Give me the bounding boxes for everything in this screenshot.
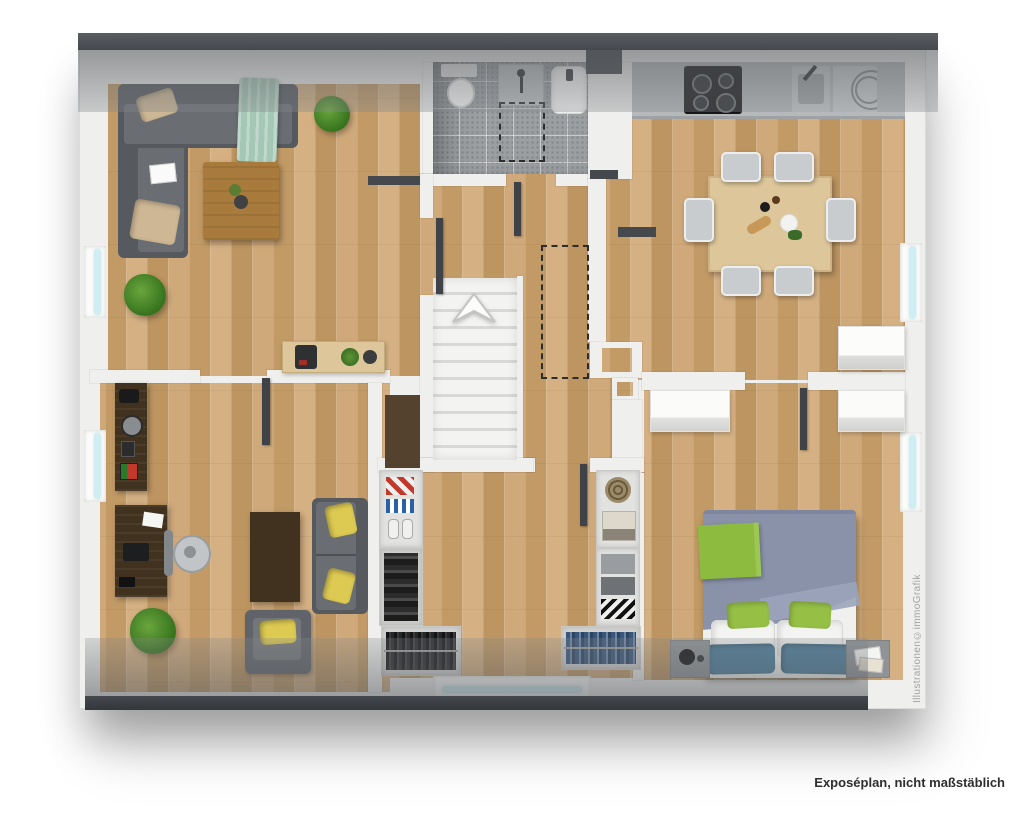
- bottle: [760, 202, 770, 212]
- dining-chair: [721, 152, 761, 182]
- clock: [121, 415, 143, 437]
- page: Illustrationen©immoGrafik Exposéplan, ni…: [0, 0, 1024, 829]
- bottle: [772, 196, 780, 204]
- folded-clothes: [386, 477, 414, 495]
- folded-gray: [601, 577, 635, 595]
- roof-edge-top: [78, 33, 938, 50]
- hall-kitchen-wall: [588, 179, 606, 342]
- chair-hub: [184, 546, 196, 558]
- dining-chair: [774, 266, 814, 296]
- potted-plant: [124, 274, 166, 316]
- espresso-accent: [299, 360, 307, 365]
- kitchen-dresser: [838, 326, 905, 370]
- junction-wall-a: [590, 342, 642, 378]
- stairs-east-edge: [517, 276, 523, 458]
- living-east-wall-upper: [420, 174, 433, 218]
- living-office-wall-west: [90, 370, 200, 383]
- small-plant: [341, 348, 359, 366]
- wall-niche-large: [602, 348, 632, 372]
- picture-frame: [121, 441, 135, 457]
- coffee-table: [203, 162, 279, 240]
- sneaker: [402, 519, 413, 539]
- bedroom-north-wall-left: [642, 372, 745, 390]
- green-pillow: [726, 601, 769, 629]
- cushion-divider: [316, 554, 356, 556]
- paper: [142, 512, 164, 529]
- chair-backrest: [164, 530, 173, 576]
- bedroom-north-wall-right: [808, 372, 905, 390]
- bowl: [363, 350, 377, 364]
- window-left-living-glass: [95, 250, 100, 314]
- dining-chair: [684, 198, 714, 242]
- basket: [605, 477, 631, 503]
- zigzag-textile: [601, 599, 635, 619]
- dining-chair: [774, 152, 814, 182]
- bedroom-door: [800, 388, 807, 450]
- junction-wall-b: [612, 378, 638, 400]
- sideboard: [282, 341, 385, 373]
- bag: [119, 389, 139, 403]
- staircase-direction-arrow: [447, 286, 501, 326]
- roof-slope-band-top: [78, 50, 938, 112]
- green-blanket: [698, 522, 762, 579]
- baguette: [745, 214, 773, 236]
- office-chair: [164, 528, 210, 580]
- sneaker: [388, 519, 399, 539]
- espresso-machine: [295, 345, 317, 369]
- office-door: [262, 378, 270, 445]
- green-pillow: [788, 601, 831, 629]
- striped-towel: [386, 499, 414, 513]
- watermark: Illustrationen©immoGrafik: [912, 538, 923, 703]
- bedroom-closet-left: [650, 390, 730, 432]
- roof-edge-bottom: [85, 696, 868, 710]
- dressing-tall-cabinet: [385, 395, 420, 468]
- dressing-room-door: [580, 464, 587, 526]
- desk-item: [119, 577, 135, 587]
- hallway-dashed-marker: [541, 245, 589, 379]
- office-wall-shelf: [115, 383, 147, 491]
- towel-stack: [602, 511, 636, 541]
- living-east-wall-lower: [420, 295, 433, 472]
- window-right-bedroom-glass: [910, 436, 915, 508]
- living-room-door: [436, 218, 443, 294]
- office-desk: [115, 505, 167, 597]
- bathroom-south-wall-right: [556, 174, 588, 186]
- wall-niche-small: [617, 382, 633, 396]
- window-right-kitchen-glass: [910, 247, 915, 318]
- dining-chair: [721, 266, 761, 296]
- bathroom-door: [514, 182, 521, 236]
- wardrobe-left-bottom: [379, 548, 423, 626]
- wardrobe-left-top: [379, 470, 423, 548]
- dining-chair: [826, 198, 856, 242]
- roof-slope-band-bottom: [85, 638, 868, 698]
- laptop: [123, 543, 149, 561]
- flag-item: [120, 463, 138, 480]
- caption: Exposéplan, nicht maßstäblich: [814, 775, 1005, 790]
- dark-clothes-stack: [384, 553, 418, 621]
- window-left-office-glass: [95, 434, 100, 498]
- table-vase: [234, 195, 248, 209]
- wardrobe-right-top: [596, 470, 640, 548]
- bedroom-closet-right: [838, 390, 905, 432]
- kitchen-half-wall: [618, 227, 656, 237]
- office-coffee-table: [250, 512, 300, 602]
- hall-half-wall: [590, 170, 618, 179]
- sofa-pillow: [129, 198, 181, 245]
- living-half-wall: [368, 176, 420, 185]
- table-sprig: [229, 184, 241, 196]
- dining-table: [708, 176, 832, 272]
- magazine: [149, 163, 177, 185]
- folded-gray: [601, 554, 635, 574]
- greens: [788, 230, 802, 240]
- wardrobe-right-bottom: [596, 548, 640, 626]
